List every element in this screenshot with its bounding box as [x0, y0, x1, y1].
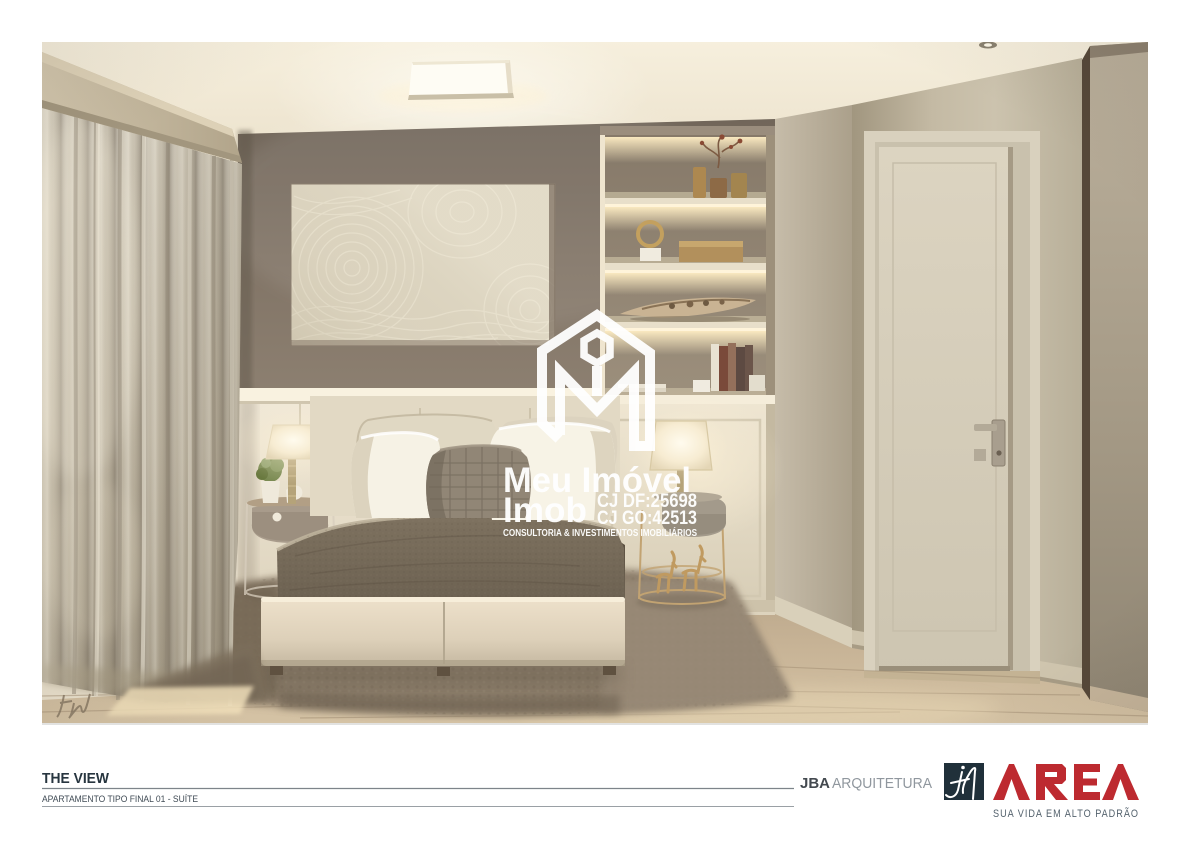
svg-text:THE VIEW: THE VIEW — [42, 770, 110, 787]
svg-text:SUA VIDA EM ALTO PADRÃO: SUA VIDA EM ALTO PADRÃO — [993, 807, 1139, 820]
svg-text:ARQUITETURA: ARQUITETURA — [832, 776, 932, 792]
svg-text:CONSULTORIA & INVESTIMENTOS IM: CONSULTORIA & INVESTIMENTOS IMOBILIÁRIOS — [503, 526, 697, 539]
svg-text:JBA: JBA — [800, 776, 831, 792]
svg-text:APARTAMENTO TIPO FINAL 01 - SU: APARTAMENTO TIPO FINAL 01 - SUÍTE — [42, 794, 198, 805]
svg-text:Imob: Imob — [503, 491, 587, 530]
svg-text:CJ GO:42513: CJ GO:42513 — [597, 507, 697, 529]
